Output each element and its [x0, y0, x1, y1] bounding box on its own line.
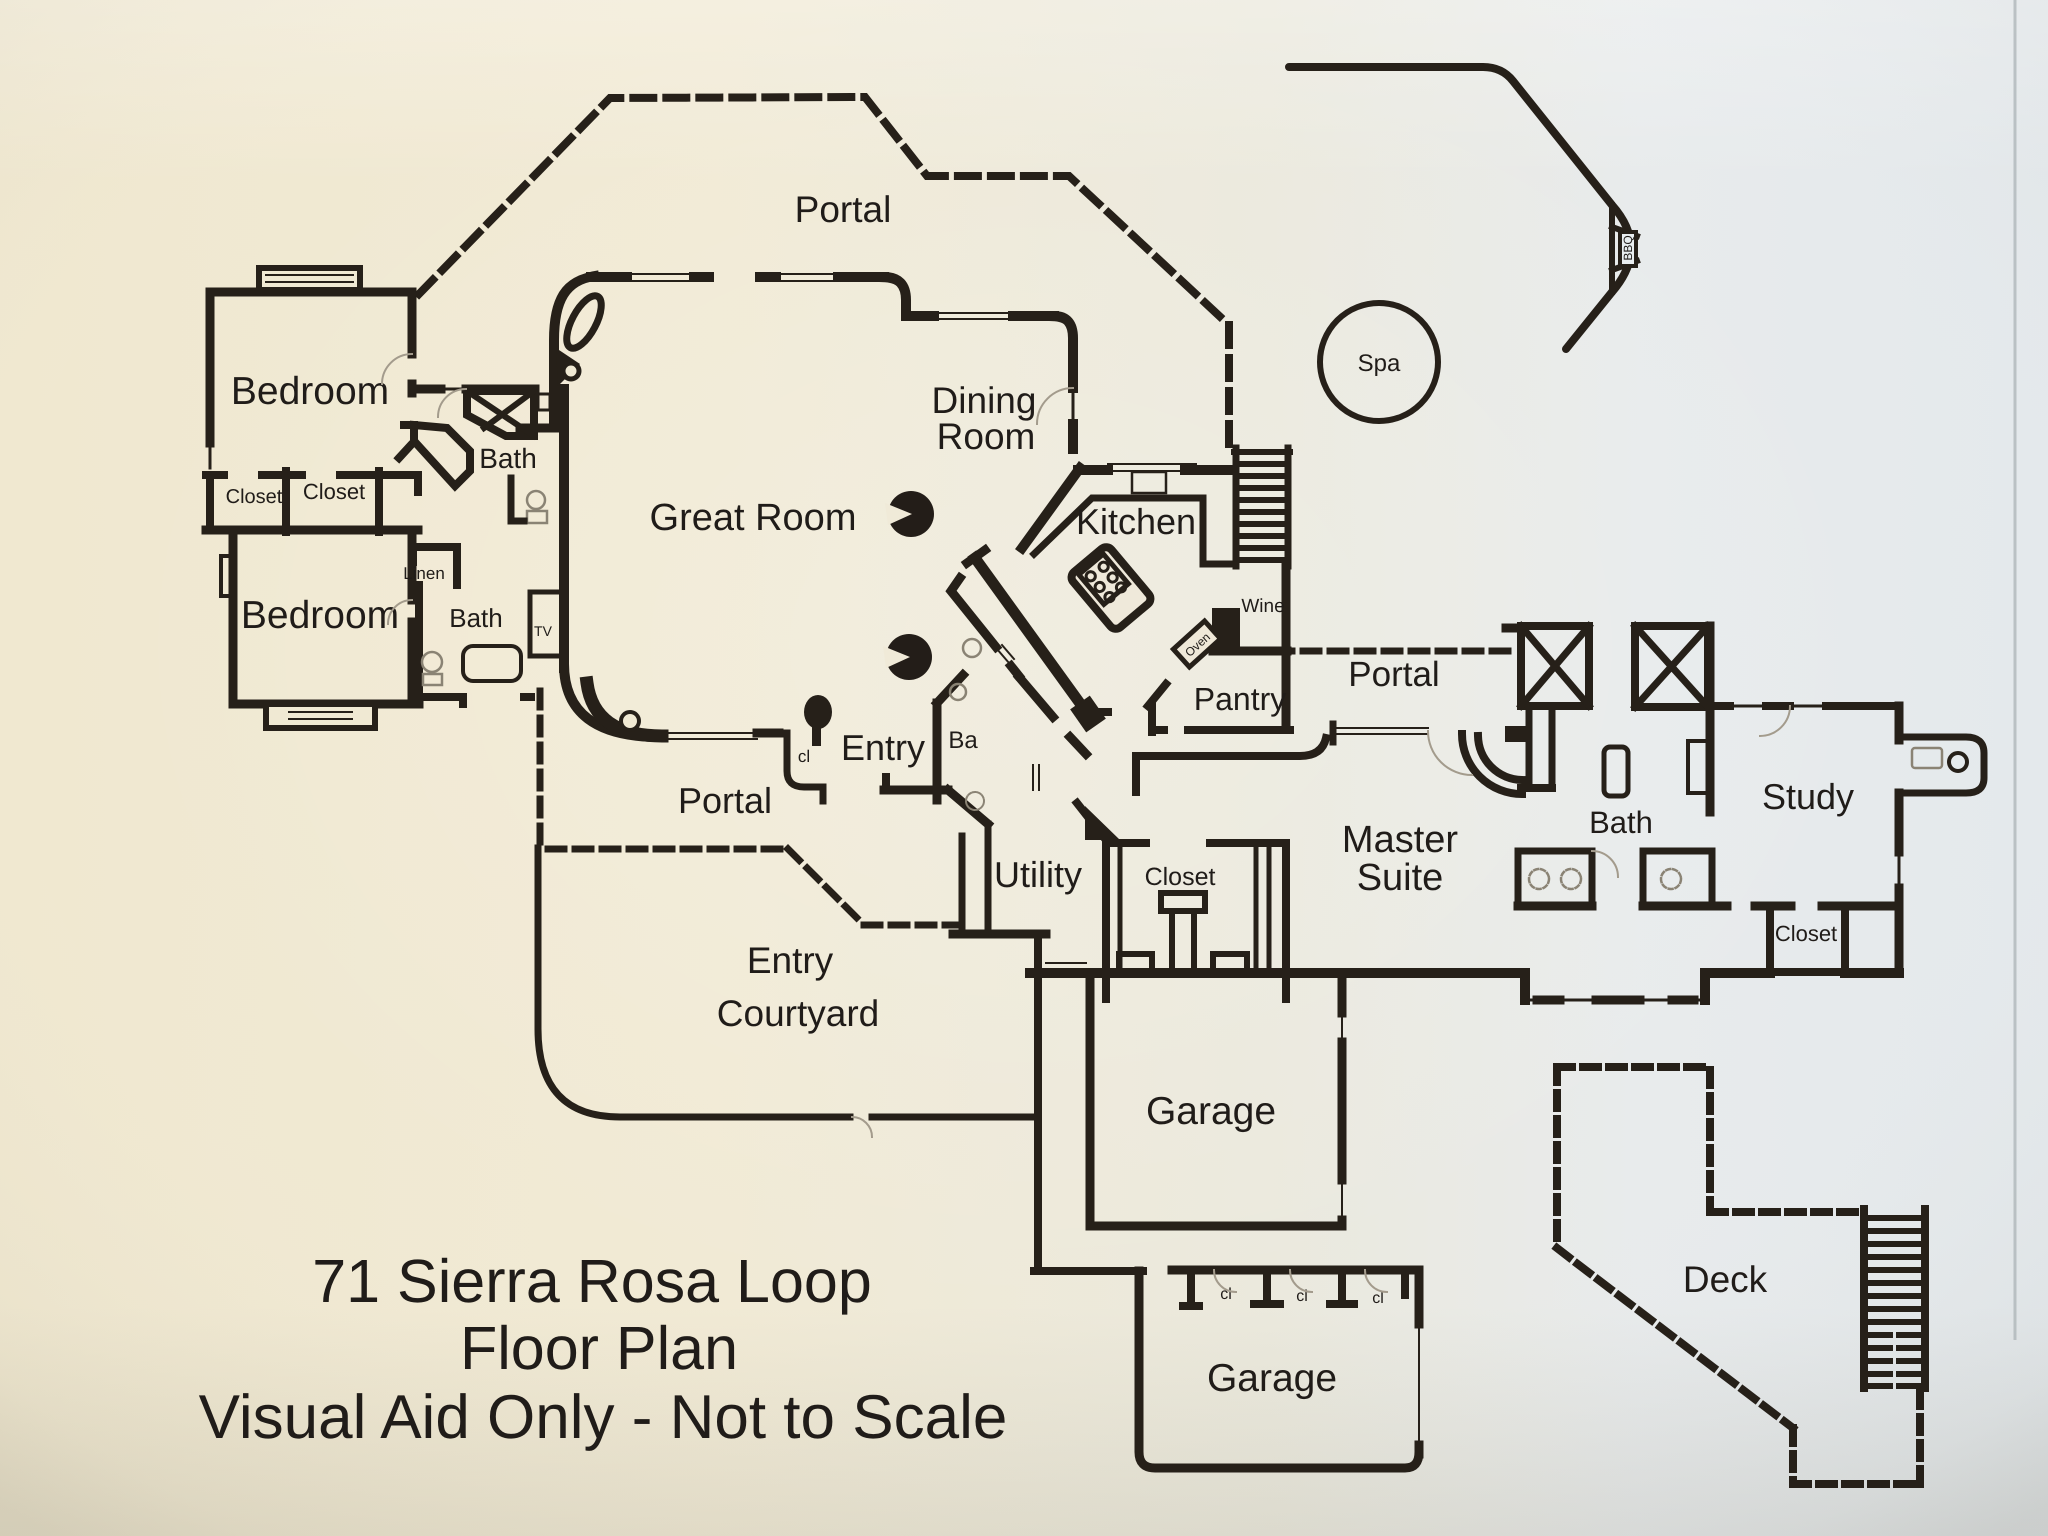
svg-text:Closet: Closet — [226, 486, 283, 508]
svg-text:Bath: Bath — [449, 603, 503, 633]
svg-text:Portal: Portal — [1348, 655, 1439, 694]
svg-text:Portal: Portal — [678, 780, 772, 821]
svg-text:Entry: Entry — [841, 727, 925, 768]
svg-text:Ba: Ba — [948, 727, 978, 754]
svg-text:Closet: Closet — [1145, 863, 1216, 891]
svg-text:Great Room: Great Room — [650, 497, 857, 539]
svg-text:Dining: Dining — [932, 380, 1037, 421]
svg-text:Bath: Bath — [1589, 805, 1653, 840]
svg-text:Entry: Entry — [747, 940, 834, 981]
svg-text:Utility: Utility — [994, 854, 1082, 895]
svg-text:Spa: Spa — [1358, 350, 1401, 377]
svg-text:Study: Study — [1762, 776, 1854, 817]
svg-text:Portal: Portal — [795, 189, 892, 230]
svg-text:71 Sierra Rosa Loop: 71 Sierra Rosa Loop — [312, 1247, 872, 1315]
svg-text:BBQ: BBQ — [1621, 235, 1635, 260]
svg-text:Bedroom: Bedroom — [231, 370, 389, 413]
svg-text:TV: TV — [534, 623, 553, 639]
svg-text:Floor Plan: Floor Plan — [460, 1314, 738, 1382]
svg-text:Deck: Deck — [1683, 1259, 1768, 1300]
svg-text:Garage: Garage — [1207, 1357, 1337, 1400]
svg-text:Bedroom: Bedroom — [241, 594, 399, 637]
svg-text:Wine: Wine — [1241, 596, 1284, 617]
svg-text:Closet: Closet — [303, 479, 365, 504]
svg-text:cl: cl — [798, 747, 810, 766]
svg-text:Room: Room — [937, 416, 1036, 457]
svg-text:Courtyard: Courtyard — [717, 993, 879, 1034]
svg-text:Suite: Suite — [1357, 857, 1444, 899]
svg-text:Kitchen: Kitchen — [1076, 501, 1196, 542]
svg-text:Linen: Linen — [403, 564, 445, 583]
svg-text:Bath: Bath — [479, 443, 537, 474]
svg-text:cl: cl — [1372, 1290, 1384, 1307]
svg-text:Pantry: Pantry — [1194, 681, 1286, 717]
svg-text:Visual Aid Only - Not to Scale: Visual Aid Only - Not to Scale — [199, 1383, 1008, 1452]
svg-text:Closet: Closet — [1775, 921, 1837, 946]
svg-text:Garage: Garage — [1146, 1090, 1276, 1133]
svg-text:Master: Master — [1342, 819, 1458, 861]
